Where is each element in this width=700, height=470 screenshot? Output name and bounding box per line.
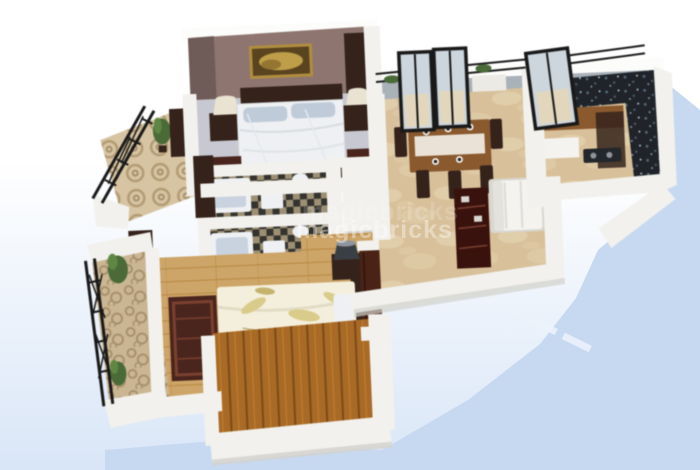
gas-stove [583,147,622,163]
tv-unit [454,187,491,268]
kitchen-window [526,48,578,129]
watermark: magicbricks [296,216,453,244]
dining-chair [416,170,430,199]
dining-window-2 [434,48,469,127]
wall-painting [250,45,311,78]
table-runner [414,133,485,156]
balcony-box [472,74,507,91]
kitchen-sink [545,137,580,158]
floor-plan-scene: magicbricks magicbricks [0,0,700,470]
dining-chair [490,119,503,149]
dining-window-1 [399,52,434,131]
floor-plan-render: magicbricks magicbricks [0,0,700,470]
